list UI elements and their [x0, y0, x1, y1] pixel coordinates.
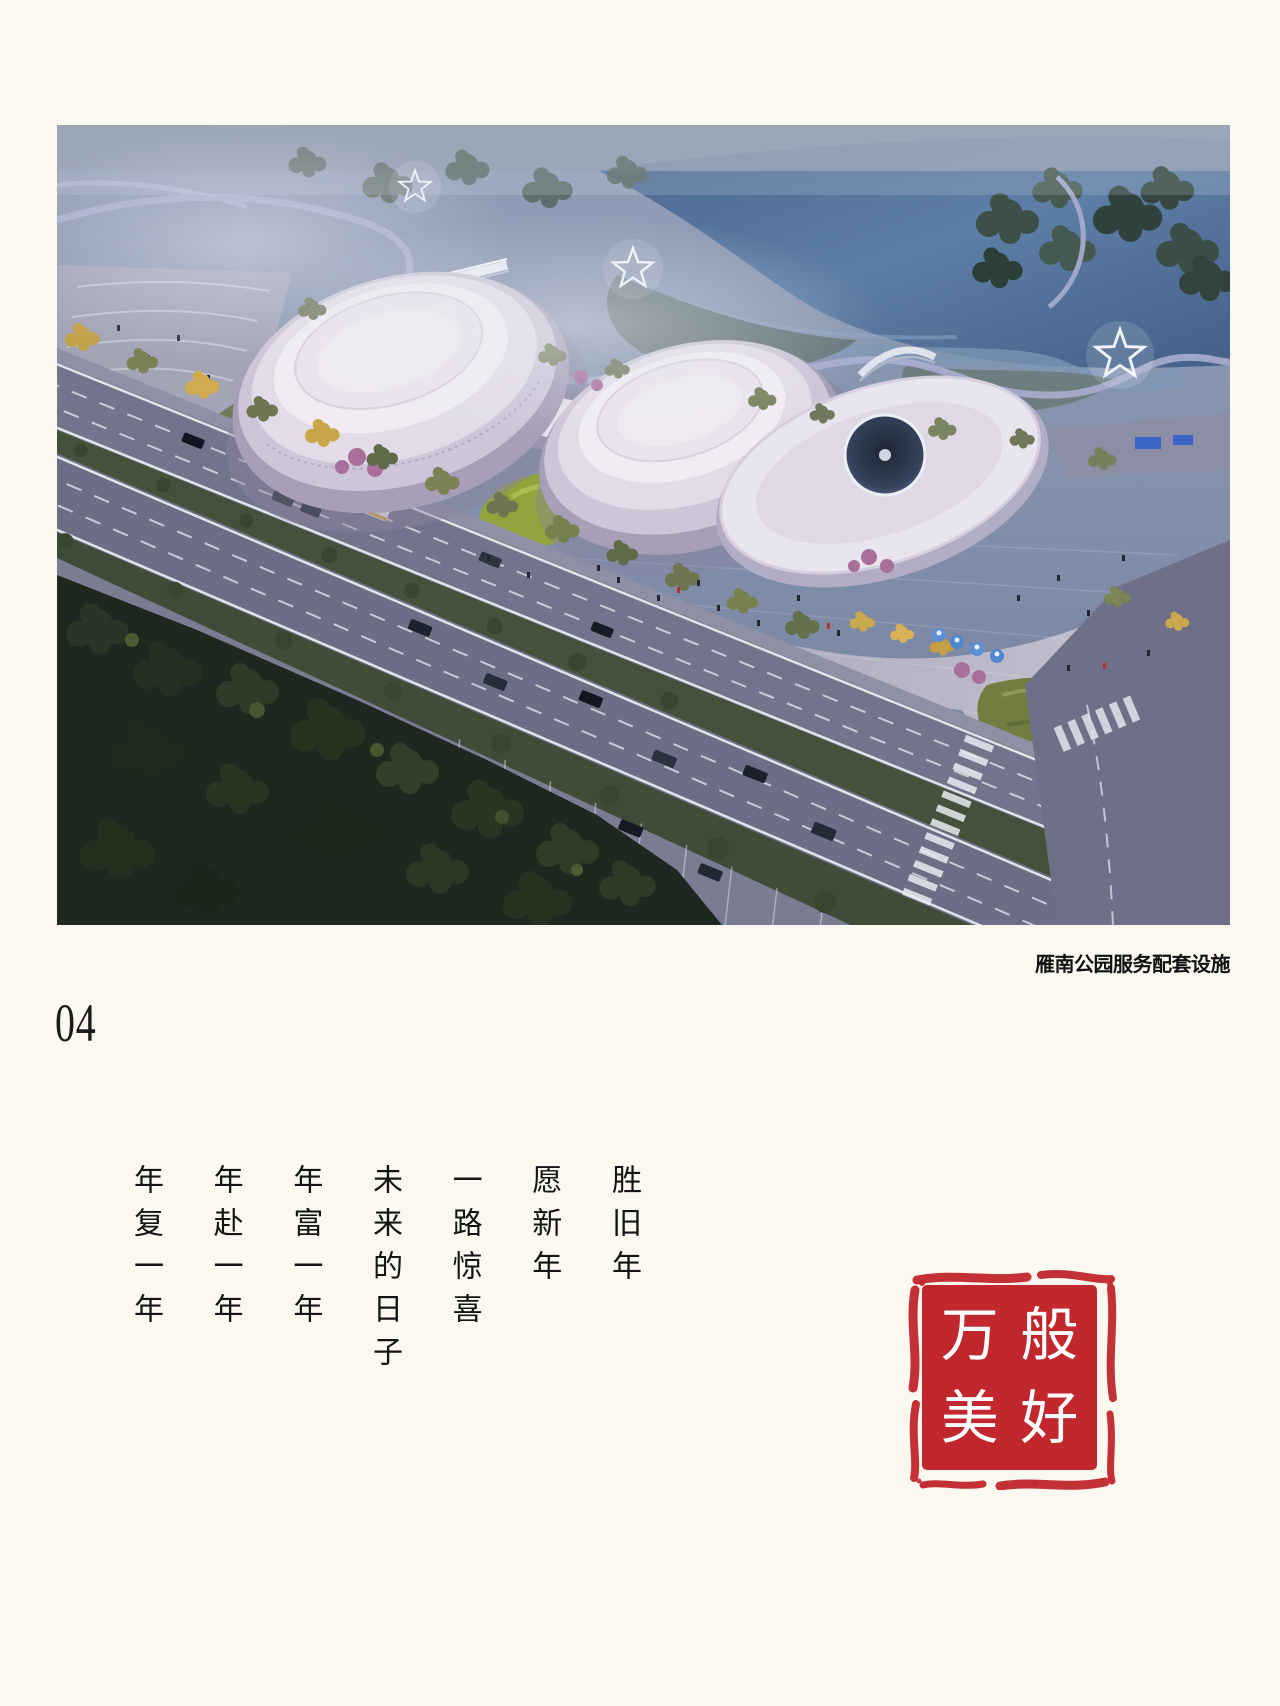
photo-caption: 雁南公园服务配套设施	[1035, 948, 1230, 977]
poem-column: 胜旧年	[605, 1164, 641, 1399]
poem-column: 年复一年	[127, 1164, 163, 1399]
poem-column: 愿新年	[525, 1164, 561, 1399]
poem-column: 未来的日子	[366, 1164, 402, 1399]
poem-column: 年赴一年	[207, 1164, 243, 1399]
poem-column: 年富一年	[286, 1164, 322, 1399]
hero-photo	[57, 125, 1230, 925]
seal-stamp: 万 般 美 好	[905, 1268, 1120, 1490]
seal-character: 美	[941, 1389, 999, 1449]
mist-overlay	[267, 215, 887, 435]
seal-body: 万 般 美 好	[922, 1285, 1097, 1470]
seal-character: 万	[941, 1306, 999, 1366]
seal-character: 好	[1020, 1389, 1078, 1449]
page-number: 04	[55, 996, 96, 1050]
seal-character: 般	[1020, 1306, 1078, 1366]
poem-vertical-text: 胜旧年 愿新年 一路惊喜 未来的日子 年富一年 年赴一年 年复一年	[127, 1164, 641, 1399]
aerial-rendering-illustration	[57, 125, 1230, 925]
poem-column: 一路惊喜	[446, 1164, 482, 1399]
